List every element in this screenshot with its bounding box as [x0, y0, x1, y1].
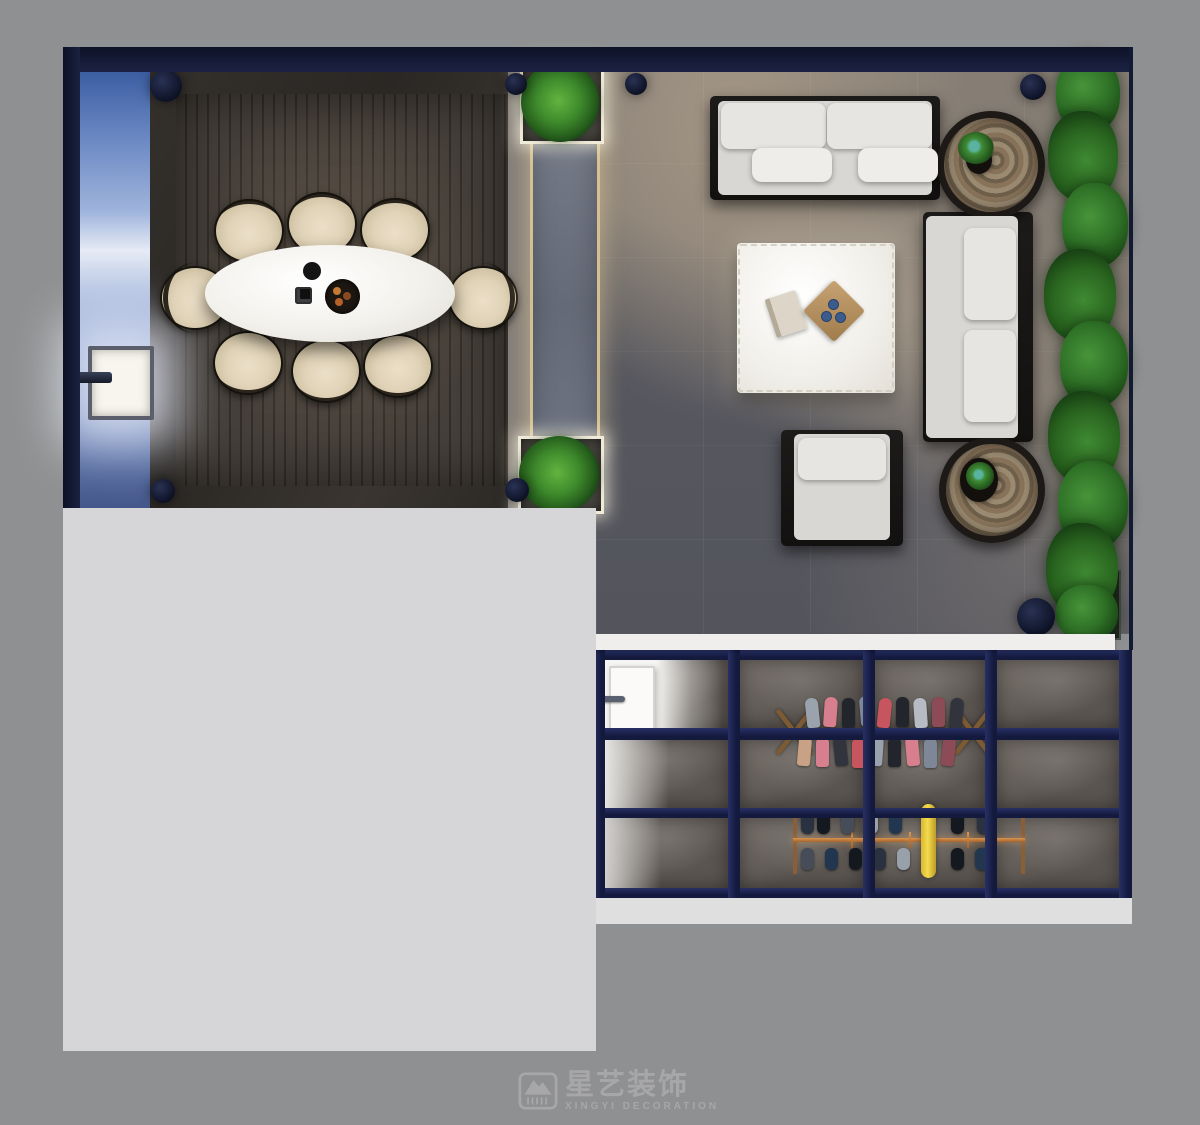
pillar-dot	[625, 73, 647, 95]
left-wall	[63, 47, 80, 508]
dining-chair	[363, 334, 433, 398]
pool-strip	[80, 72, 150, 508]
top-wall	[63, 47, 1133, 72]
floor-pot	[1017, 598, 1055, 636]
grass-plant-bottom	[519, 436, 599, 512]
partition-rail	[985, 650, 997, 898]
hanging-garment	[816, 737, 829, 767]
wall-niche-light	[88, 346, 154, 420]
shoe	[951, 848, 964, 870]
led-path	[530, 134, 600, 448]
brand-name-cn: 星艺装饰	[565, 1070, 719, 1099]
white-ledge	[596, 634, 1115, 650]
partition-rail	[1119, 650, 1132, 898]
bowl-fruit	[343, 292, 351, 300]
dining-chair	[213, 331, 283, 395]
watermark: 星艺装饰 XINGYI DECORATION	[518, 1070, 719, 1112]
pillar-dot	[1020, 74, 1046, 100]
sofa-pillow	[858, 148, 938, 182]
sofa-right-backrest	[964, 330, 1016, 422]
hanging-garment	[823, 697, 838, 728]
tray-ornament	[822, 312, 831, 321]
pillar-dot	[150, 70, 182, 102]
armchair-backrest	[798, 438, 886, 480]
hedge	[1044, 53, 1134, 643]
dining-chair	[291, 339, 361, 403]
hanging-garment	[924, 738, 937, 768]
tray-ornament	[836, 313, 845, 322]
shoe	[897, 848, 910, 870]
decor-plate	[295, 287, 312, 304]
brand-name-en: XINGYI DECORATION	[565, 1102, 719, 1112]
bowl-fruit	[333, 287, 341, 295]
tray-ornament	[829, 300, 838, 309]
bowl-fruit	[335, 298, 343, 306]
hanging-garment	[932, 697, 945, 727]
hanging-garment	[832, 735, 848, 766]
sofa-pillow	[752, 148, 832, 182]
partition-rail	[728, 650, 740, 898]
shoe	[849, 848, 862, 870]
decor-cup	[303, 262, 321, 280]
door-light	[605, 740, 669, 808]
shoe	[801, 848, 814, 870]
masked-region	[63, 508, 596, 1051]
hanging-garment	[876, 697, 892, 728]
pillar-dot	[505, 73, 527, 95]
render-canvas: 星艺装饰 XINGYI DECORATION	[0, 0, 1200, 1125]
glass-pane	[997, 660, 1119, 728]
door-light	[605, 818, 661, 888]
table-plant	[966, 462, 994, 490]
copper-post	[967, 832, 969, 848]
copper-post	[851, 832, 853, 848]
pillar-dot	[505, 478, 529, 502]
xingyi-house-logo-icon	[518, 1072, 558, 1110]
watermark-text: 星艺装饰 XINGYI DECORATION	[565, 1070, 719, 1112]
hanging-garment	[888, 737, 901, 767]
table-plant	[958, 132, 994, 164]
hanging-garment	[804, 697, 820, 728]
copper-post	[909, 832, 911, 848]
shoe	[825, 848, 838, 870]
hedge-bush	[1056, 585, 1118, 641]
hanging-garment	[797, 735, 813, 766]
partition-rail	[863, 650, 875, 898]
hanging-garment	[842, 698, 855, 728]
bottom-light-band	[596, 898, 1132, 924]
hanging-garment	[905, 735, 921, 766]
grass-plant-top	[521, 62, 599, 142]
hanging-garment	[913, 698, 928, 729]
hanging-garment	[896, 697, 909, 727]
sofa-right-backrest	[964, 228, 1016, 320]
sofa-top-backrest	[827, 103, 932, 149]
dining-chair	[448, 266, 518, 330]
glass-partition-room	[593, 650, 1132, 898]
hanging-garment	[940, 735, 956, 766]
right-wall	[1129, 47, 1133, 650]
pillar-dot	[151, 479, 175, 503]
hanging-garment	[949, 697, 965, 728]
glass-pane	[997, 740, 1119, 808]
sofa-top-backrest	[721, 103, 826, 149]
